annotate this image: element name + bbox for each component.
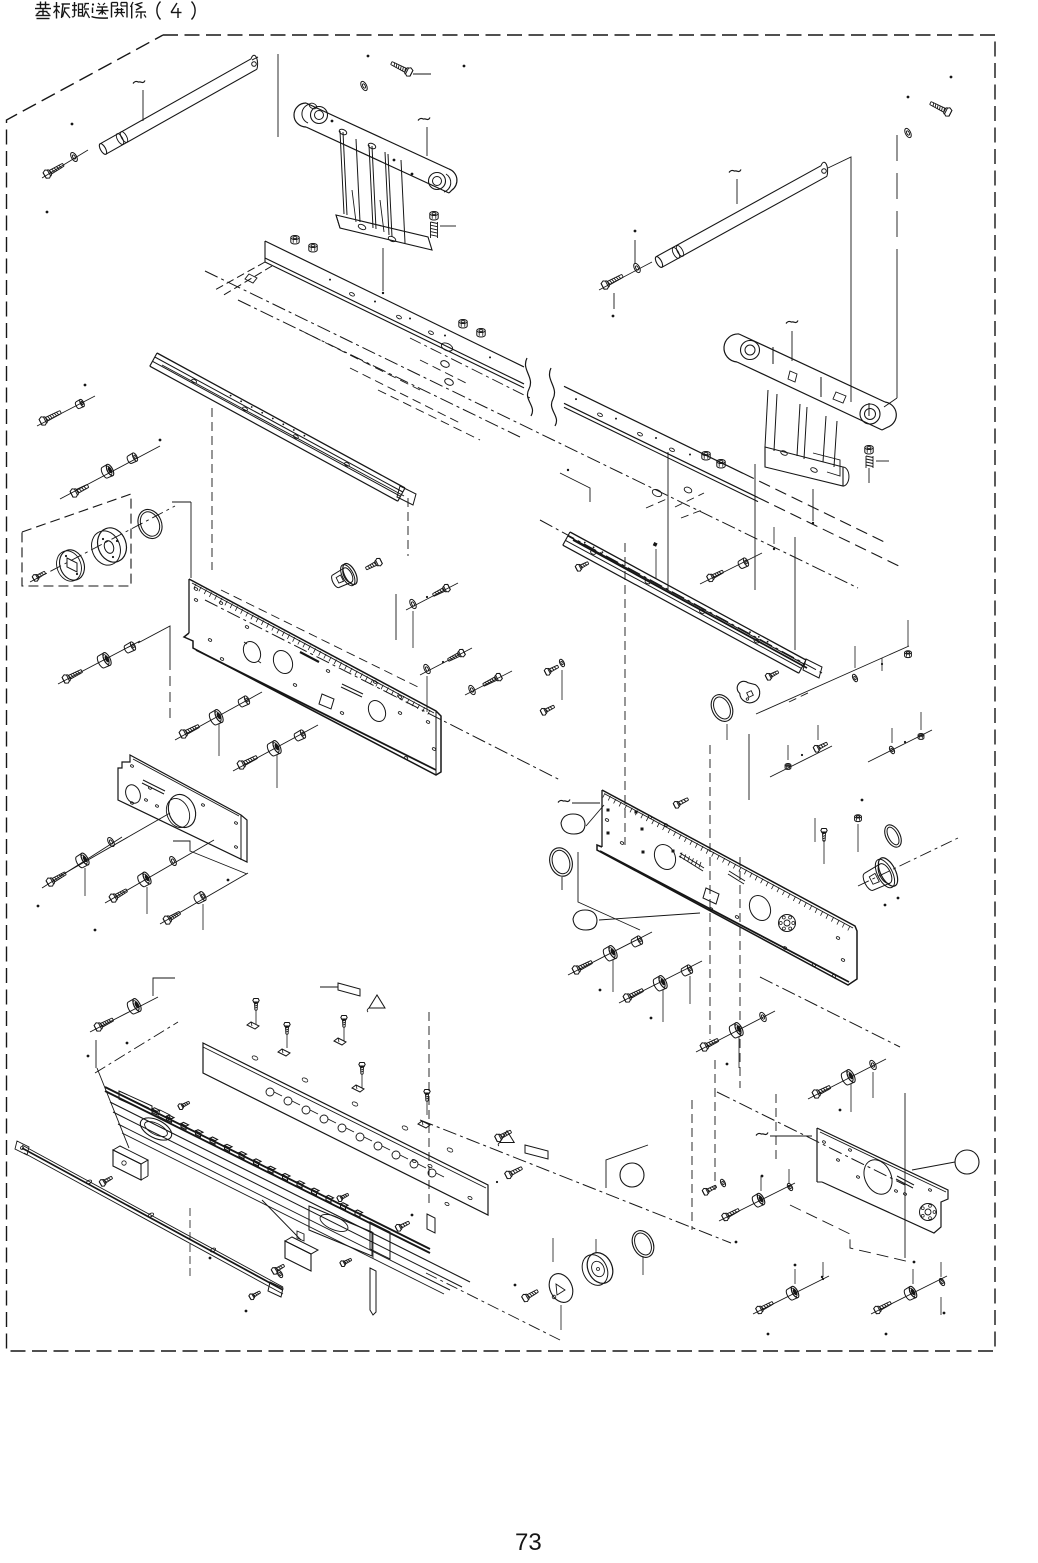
svg-text:73: 73 (515, 1529, 542, 1556)
